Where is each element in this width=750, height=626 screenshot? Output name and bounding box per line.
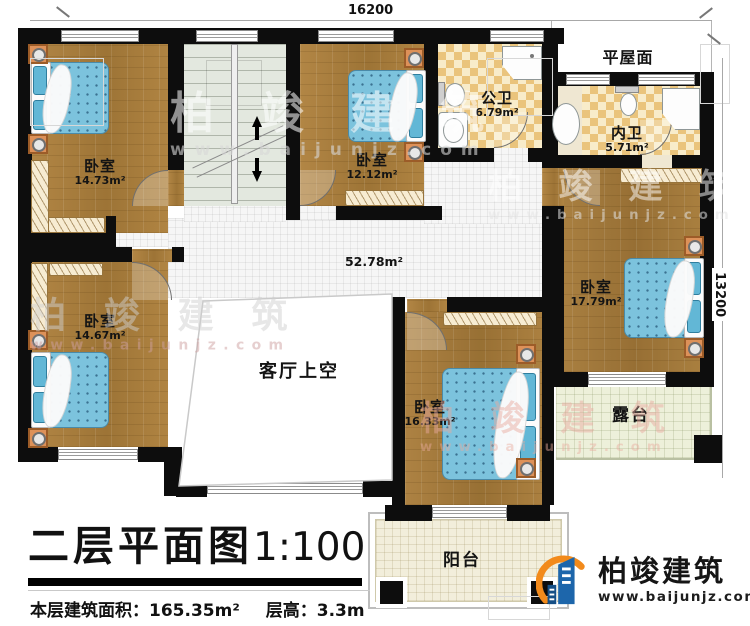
company-name: 柏竣建筑 xyxy=(598,557,750,586)
company-website: www.baijunjz.com xyxy=(598,589,750,605)
plan-title: 二层平面图1:100 xyxy=(28,512,365,572)
right-dimension-label: 13200 xyxy=(712,268,727,321)
title-underline xyxy=(28,578,362,586)
room-label-balcony: 阳台 xyxy=(443,551,481,570)
room-label-bedroom-bottom-left: 卧室 14.67m² xyxy=(74,312,125,342)
floor-area-value: 165.35m² xyxy=(149,601,240,621)
title-underline-thin xyxy=(28,590,370,591)
floor-area-label: 本层建筑面积： xyxy=(30,601,149,621)
room-label-public-bath: 公卫 6.79m² xyxy=(475,89,518,119)
company-logo: 柏竣建筑 www.baijunjz.com xyxy=(536,551,750,611)
room-label-bedroom-top-mid: 卧室 12.12m² xyxy=(346,151,397,181)
top-dimension-label: 16200 xyxy=(344,3,397,18)
top-dimension-line xyxy=(30,20,712,21)
room-label-inner-bath: 内卫 5.71m² xyxy=(605,124,648,154)
floor-height-label: 层高： xyxy=(266,601,317,621)
room-label-bedroom-bottom-mid: 卧室 16.33m² xyxy=(404,398,455,428)
floor-stats: 本层建筑面积：165.35m²层高：3.3m xyxy=(30,596,365,621)
room-label-flat-roof: 平屋面 xyxy=(602,49,653,67)
room-label-bedroom-right: 卧室 17.79m² xyxy=(570,278,621,308)
room-label-bedroom-top-left: 卧室 14.73m² xyxy=(74,157,125,187)
room-label-hallway-area: 52.78m² xyxy=(345,255,403,269)
company-logo-icon xyxy=(536,551,590,611)
floor-height-value: 3.3m xyxy=(317,601,365,621)
room-label-living-void: 客厅上空 xyxy=(259,362,339,382)
room-label-terrace: 露台 xyxy=(612,406,650,425)
floor-plan-canvas: 卧室 14.73m² 卧室 12.12m² 公卫 6.79m² 平屋面 内卫 5… xyxy=(0,0,750,626)
